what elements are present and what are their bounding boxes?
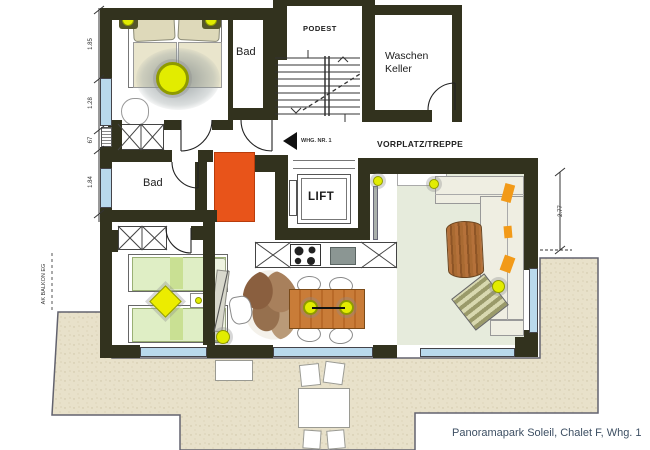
- wall-segment: [108, 8, 278, 20]
- window-terrace-door: [273, 347, 373, 357]
- lift-door: [293, 160, 355, 169]
- window: [100, 168, 112, 208]
- room-podest: [287, 6, 362, 116]
- stove: [290, 244, 321, 266]
- wall-segment: [228, 14, 233, 120]
- window-hatched: [101, 127, 112, 147]
- dimension-label: 1.84: [86, 167, 96, 197]
- wall-segment: [203, 222, 215, 345]
- wall-segment: [100, 230, 118, 252]
- window: [420, 348, 515, 357]
- balkon-marker-label: AK BALKON EG: [41, 249, 47, 319]
- plan-caption: Panoramapark Soleil, Chalet F, Whg. 1: [452, 427, 642, 439]
- nightstand-light: [195, 297, 202, 304]
- wall-segment: [207, 345, 273, 358]
- wall-segment: [524, 158, 538, 270]
- room-label-bad-top: Bad: [236, 46, 256, 58]
- window: [140, 347, 207, 357]
- wall-segment: [100, 150, 172, 162]
- wall-segment: [100, 8, 112, 78]
- wall-segment: [100, 345, 140, 358]
- wall-segment: [273, 0, 369, 6]
- room-label-podest: PODEST: [303, 24, 337, 33]
- bed-stripe: [170, 257, 183, 289]
- balcony-planter: [215, 360, 253, 381]
- wall-segment: [191, 226, 203, 240]
- wardrobe: [118, 124, 164, 150]
- wall-segment: [362, 0, 375, 122]
- kitchen-counter: [255, 242, 397, 268]
- wall-segment: [515, 337, 538, 357]
- wall-segment: [212, 120, 233, 130]
- lift-counterweight: [289, 180, 297, 216]
- waschen-line2: Keller: [385, 63, 412, 75]
- entry-label: WHG. NR. 1: [301, 138, 332, 144]
- wall-segment: [100, 210, 217, 222]
- sink: [330, 247, 356, 265]
- window: [100, 78, 112, 126]
- outdoor-chair: [323, 361, 346, 386]
- radiator: [373, 186, 378, 240]
- room-bad-top: [233, 14, 263, 108]
- coffee-table-wood: [446, 220, 485, 279]
- dimension-label: 1.85: [86, 29, 96, 59]
- dimension-label: 1.28: [86, 88, 96, 118]
- wall-segment: [452, 5, 462, 122]
- sofa-return: [490, 320, 524, 336]
- dimension-label: 67: [86, 125, 96, 155]
- outdoor-table: [298, 388, 350, 428]
- outdoor-chair: [302, 429, 321, 449]
- hallway-light: [216, 330, 230, 344]
- cabinet-orange: [214, 152, 255, 222]
- ceiling-light-large: [156, 62, 189, 95]
- ceiling-light: [373, 176, 383, 186]
- pendant-light: [339, 300, 354, 315]
- sofa-cushion-orange: [503, 226, 512, 239]
- wall-segment: [198, 150, 213, 162]
- room-label-bad-mid: Bad: [143, 177, 163, 189]
- room-label-waschen: Waschen Keller: [385, 50, 428, 76]
- wall-segment: [373, 345, 397, 358]
- dimension-label: 2.77: [556, 196, 566, 226]
- pendant-light: [303, 300, 318, 315]
- ceiling-light: [492, 280, 505, 293]
- room-label-lift: LIFT: [308, 191, 334, 203]
- wall-segment: [273, 0, 287, 60]
- wall-segment: [195, 162, 207, 210]
- wall-segment: [362, 158, 538, 174]
- wall-segment: [362, 5, 462, 15]
- wall-segment: [228, 108, 278, 120]
- area-label-vorplatz: VORPLATZ/TREPPE: [377, 139, 463, 149]
- outdoor-chair: [299, 363, 321, 387]
- wall-segment: [275, 228, 370, 240]
- wall-segment: [362, 110, 432, 122]
- outdoor-chair: [326, 429, 346, 449]
- wall-segment: [164, 120, 181, 130]
- window: [529, 268, 538, 333]
- chair-sketch: [121, 98, 149, 126]
- floorplan-canvas: Bad PODEST Waschen Keller Bad LIFT VORPL…: [0, 0, 650, 450]
- wardrobe: [118, 226, 167, 250]
- bed-stripe: [170, 308, 183, 340]
- ceiling-light: [429, 179, 439, 189]
- waschen-line1: Waschen: [385, 50, 428, 62]
